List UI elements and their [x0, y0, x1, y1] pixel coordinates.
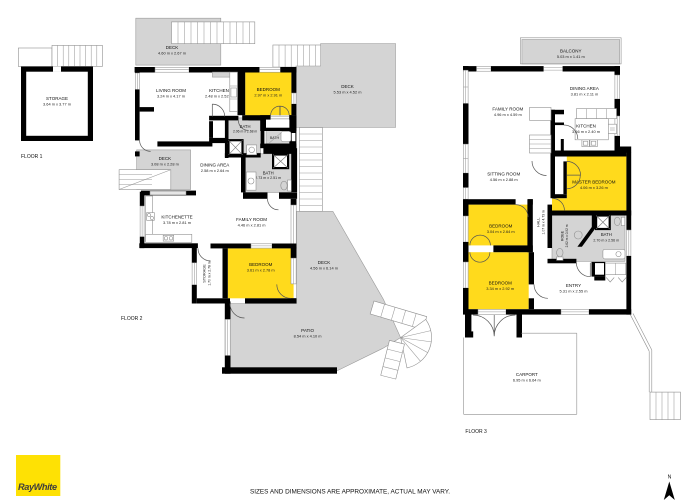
svg-text:DECK: DECK: [341, 84, 354, 89]
svg-text:DINING AREA: DINING AREA: [570, 86, 599, 91]
svg-text:3.34 m x 2.92 m: 3.34 m x 2.92 m: [486, 286, 514, 291]
svg-text:BEDROOM: BEDROOM: [257, 87, 281, 92]
svg-text:4.56 m x 6.14 m: 4.56 m x 6.14 m: [310, 266, 338, 271]
svg-text:4.06 m x 3.26 m: 4.06 m x 3.26 m: [580, 185, 608, 190]
svg-text:BATH: BATH: [240, 124, 251, 129]
svg-text:KITCHEN: KITCHEN: [209, 88, 229, 93]
svg-text:5.53 m x 4.52 m: 5.53 m x 4.52 m: [334, 90, 362, 95]
svg-text:BATH: BATH: [601, 232, 612, 237]
svg-text:BALCONY: BALCONY: [560, 49, 582, 54]
svg-text:STORAGE: STORAGE: [203, 264, 207, 283]
svg-text:6.95 m x 6.64 m: 6.95 m x 6.64 m: [513, 378, 541, 383]
svg-text:FAMILY ROOM: FAMILY ROOM: [492, 107, 523, 112]
svg-text:CARPORT: CARPORT: [516, 372, 538, 377]
svg-text:2.73 m x 2.51 m: 2.73 m x 2.51 m: [255, 176, 281, 180]
svg-text:ENTRY: ENTRY: [566, 283, 581, 288]
svg-text:3.04 m x 2.64 m: 3.04 m x 2.64 m: [487, 229, 515, 234]
svg-text:BEDROOM: BEDROOM: [489, 281, 513, 286]
svg-text:ROBE: ROBE: [561, 230, 565, 241]
svg-text:LIVING ROOM: LIVING ROOM: [156, 88, 186, 93]
svg-text:DINING AREA: DINING AREA: [200, 162, 229, 167]
svg-text:4.96 m x 4.59 m: 4.96 m x 4.59 m: [494, 112, 522, 117]
svg-text:2.48 m x 2.52 m: 2.48 m x 2.52 m: [205, 94, 233, 99]
svg-text:8.54 m x 4.10 m: 8.54 m x 4.10 m: [294, 334, 322, 339]
svg-text:5.31 m x 2.55 m: 5.31 m x 2.55 m: [560, 288, 588, 293]
svg-text:BEDROOM: BEDROOM: [249, 262, 273, 267]
svg-text:FLOOR 1: FLOOR 1: [21, 154, 43, 160]
svg-text:HALL: HALL: [536, 218, 540, 228]
svg-text:4.60 m x 2.67 m: 4.60 m x 2.67 m: [158, 51, 186, 56]
svg-text:1.07 m x 4.73 m: 1.07 m x 4.73 m: [541, 210, 545, 234]
svg-text:2.70 m x 2.56 m: 2.70 m x 2.56 m: [593, 238, 619, 242]
svg-text:3.61 m x 2.78 m: 3.61 m x 2.78 m: [247, 268, 275, 273]
svg-text:KITCHEN: KITCHEN: [576, 124, 596, 129]
svg-text:3.64 m x 3.77 m: 3.64 m x 3.77 m: [43, 102, 71, 107]
svg-text:SIZES AND DIMENSIONS ARE APPRO: SIZES AND DIMENSIONS ARE APPROXIMATE, AC…: [250, 489, 450, 496]
svg-text:DECK: DECK: [159, 156, 172, 161]
svg-text:4.46 m x 2.81 m: 4.46 m x 2.81 m: [238, 223, 266, 228]
svg-text:2.97 m x 2.91 m: 2.97 m x 2.91 m: [254, 93, 282, 98]
svg-text:FAMILY ROOM: FAMILY ROOM: [236, 217, 267, 222]
svg-text:N: N: [668, 475, 672, 481]
svg-text:STORAGE: STORAGE: [46, 96, 68, 101]
svg-text:1.70 m x 2.78 m: 1.70 m x 2.78 m: [208, 261, 212, 285]
svg-text:3.81 m x 2.11 m: 3.81 m x 2.11 m: [571, 91, 599, 96]
svg-text:3.24 m x 4.17 m: 3.24 m x 4.17 m: [157, 94, 185, 99]
svg-text:BATH: BATH: [263, 171, 274, 176]
svg-text:FLOOR 3: FLOOR 3: [465, 429, 487, 435]
svg-text:FLOOR 2: FLOOR 2: [121, 316, 143, 322]
svg-text:KITCHENETTE: KITCHENETTE: [161, 215, 192, 220]
svg-text:BATH: BATH: [270, 136, 280, 140]
svg-text:PATIO: PATIO: [301, 328, 314, 333]
svg-text:2.62 m x 0.92 m: 2.62 m x 0.92 m: [565, 224, 569, 247]
svg-text:3.78 m x 2.81 m: 3.78 m x 2.81 m: [163, 220, 191, 225]
svg-text:DECK: DECK: [318, 260, 331, 265]
svg-text:DECK: DECK: [166, 45, 179, 50]
svg-text:3.08 m x 2.28 m: 3.08 m x 2.28 m: [151, 162, 179, 167]
svg-text:RayWhite: RayWhite: [18, 482, 57, 492]
svg-text:5.03 m x 1.41 m: 5.03 m x 1.41 m: [557, 54, 585, 59]
svg-text:2.58 m x 2.64 m: 2.58 m x 2.64 m: [201, 168, 229, 173]
svg-text:4.56 m x 2.88 m: 4.56 m x 2.88 m: [490, 177, 518, 182]
svg-text:SITTING ROOM: SITTING ROOM: [487, 171, 520, 176]
